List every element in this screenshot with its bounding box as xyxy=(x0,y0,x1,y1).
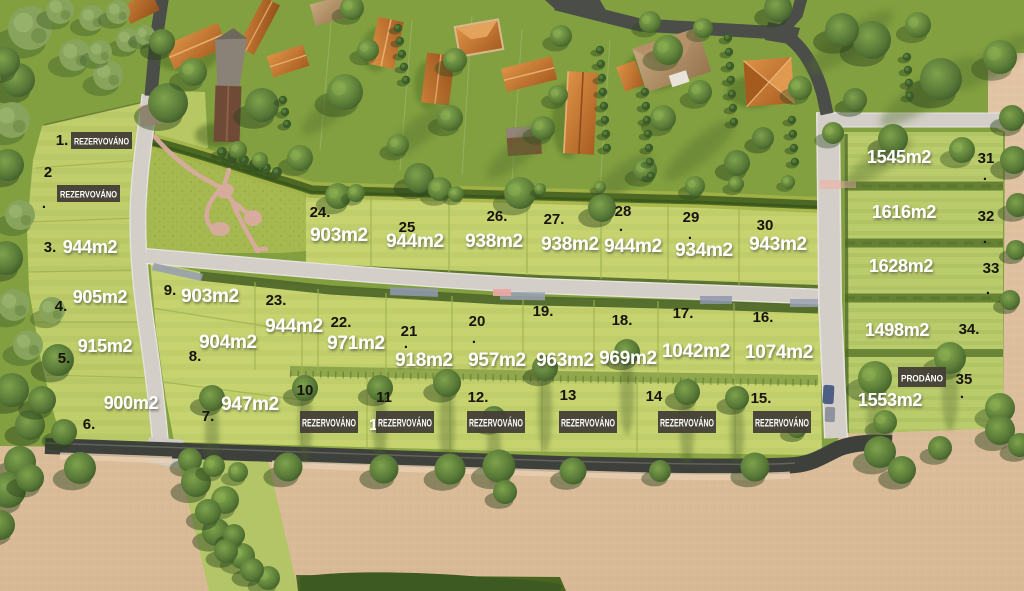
svg-text:26.: 26. xyxy=(487,208,508,225)
svg-text:24.: 24. xyxy=(310,204,331,221)
svg-text:4.: 4. xyxy=(55,298,68,315)
svg-text:REZERVOVÁNO: REZERVOVÁNO xyxy=(378,417,432,430)
svg-text:944m2: 944m2 xyxy=(604,236,662,257)
svg-text:904m2: 904m2 xyxy=(199,332,257,353)
svg-text:1628m2: 1628m2 xyxy=(869,256,934,276)
svg-text:9.: 9. xyxy=(164,282,177,299)
svg-text:19.: 19. xyxy=(533,303,554,320)
svg-text:34.: 34. xyxy=(959,321,980,338)
svg-text:934m2: 934m2 xyxy=(675,240,733,261)
svg-text:.: . xyxy=(960,385,964,402)
svg-text:918m2: 918m2 xyxy=(395,350,453,371)
svg-text:.: . xyxy=(472,330,476,347)
svg-text:963m2: 963m2 xyxy=(536,350,594,371)
svg-text:900m2: 900m2 xyxy=(104,393,159,413)
svg-text:1545m2: 1545m2 xyxy=(867,147,932,167)
svg-text:915m2: 915m2 xyxy=(78,336,133,356)
svg-text:PRODÁNO: PRODÁNO xyxy=(901,374,943,385)
svg-text:.: . xyxy=(983,167,987,184)
svg-text:969m2: 969m2 xyxy=(599,348,657,369)
svg-text:18.: 18. xyxy=(612,312,633,329)
svg-text:REZERVOVÁNO: REZERVOVÁNO xyxy=(561,417,615,430)
svg-text:10: 10 xyxy=(297,382,314,399)
svg-text:REZERVOVÁNO: REZERVOVÁNO xyxy=(60,190,117,201)
svg-text:957m2: 957m2 xyxy=(468,350,526,371)
svg-text:1074m2: 1074m2 xyxy=(745,342,813,363)
svg-text:23.: 23. xyxy=(266,292,287,309)
svg-text:11: 11 xyxy=(376,389,392,406)
svg-text:6.: 6. xyxy=(83,416,96,433)
svg-text:30: 30 xyxy=(757,217,774,234)
svg-text:5.: 5. xyxy=(58,350,71,367)
svg-text:29: 29 xyxy=(683,209,700,226)
svg-text:31: 31 xyxy=(978,150,995,167)
svg-text:.: . xyxy=(619,218,623,235)
svg-text:944m2: 944m2 xyxy=(386,231,444,252)
svg-text:13: 13 xyxy=(560,387,577,404)
svg-text:REZERVOVÁNO: REZERVOVÁNO xyxy=(469,417,523,430)
svg-text:REZERVOVÁNO: REZERVOVÁNO xyxy=(755,417,809,430)
svg-text:938m2: 938m2 xyxy=(541,234,599,255)
svg-text:12.: 12. xyxy=(468,389,489,406)
svg-text:1553m2: 1553m2 xyxy=(858,390,923,410)
svg-text:903m2: 903m2 xyxy=(310,225,368,246)
svg-text:1.: 1. xyxy=(56,132,69,149)
svg-text:1042m2: 1042m2 xyxy=(662,341,730,362)
svg-text:7.: 7. xyxy=(202,408,215,425)
svg-text:16.: 16. xyxy=(753,309,774,326)
svg-text:.: . xyxy=(986,281,990,298)
svg-text:1616m2: 1616m2 xyxy=(872,202,937,222)
svg-text:REZERVOVÁNO: REZERVOVÁNO xyxy=(302,417,356,430)
svg-text:905m2: 905m2 xyxy=(73,287,128,307)
svg-text:17.: 17. xyxy=(673,305,694,322)
svg-text:903m2: 903m2 xyxy=(181,286,239,307)
svg-text:33: 33 xyxy=(983,260,1000,277)
svg-text:938m2: 938m2 xyxy=(465,231,523,252)
svg-text:20: 20 xyxy=(469,313,486,330)
svg-text:32: 32 xyxy=(978,208,995,225)
svg-text:947m2: 947m2 xyxy=(221,394,279,415)
svg-text:.: . xyxy=(42,195,46,212)
svg-text:.: . xyxy=(983,230,987,247)
svg-text:943m2: 943m2 xyxy=(749,234,807,255)
svg-text:14: 14 xyxy=(646,388,663,405)
svg-text:REZERVOVÁNO: REZERVOVÁNO xyxy=(74,137,129,148)
svg-text:971m2: 971m2 xyxy=(327,333,385,354)
svg-text:3.: 3. xyxy=(44,239,57,256)
svg-text:REZERVOVÁNO: REZERVOVÁNO xyxy=(660,417,714,430)
svg-text:15.: 15. xyxy=(751,390,772,407)
svg-text:944m2: 944m2 xyxy=(265,316,323,337)
svg-text:944m2: 944m2 xyxy=(63,237,118,257)
svg-text:2: 2 xyxy=(44,164,52,181)
svg-text:27.: 27. xyxy=(544,211,565,228)
svg-text:22.: 22. xyxy=(331,314,352,331)
svg-text:1498m2: 1498m2 xyxy=(865,320,930,340)
